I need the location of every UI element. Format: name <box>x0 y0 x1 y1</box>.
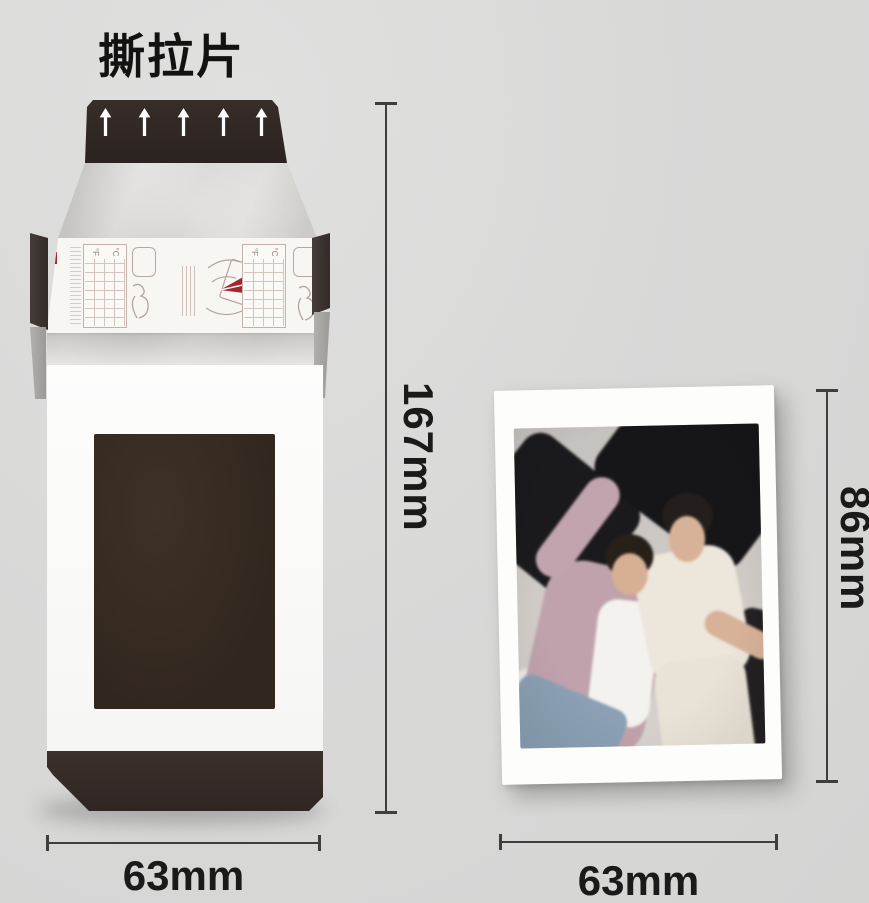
dimension-cap <box>775 834 778 850</box>
pull-direction-band <box>30 100 330 163</box>
up-arrow-icon <box>254 108 269 136</box>
person-figure-icon <box>123 282 155 322</box>
red-mark <box>54 252 57 264</box>
film-pack-body <box>47 365 323 751</box>
pack-bottom-band <box>47 751 323 811</box>
instruction-text-block <box>182 266 195 316</box>
development-time-table: °F °C <box>83 244 127 328</box>
film-exposure-window <box>94 434 275 709</box>
instruction-strip: °F °C <box>30 238 330 333</box>
table-grid <box>85 259 125 326</box>
page-title: 撕拉片 <box>98 18 245 87</box>
dimension-line-pack-height <box>385 103 387 813</box>
dimension-line-pack-width <box>47 842 320 844</box>
paper-fold-highlight <box>30 334 330 369</box>
development-time-table: °F °C <box>242 244 286 328</box>
dimension-label-photo-height: 86mm <box>831 486 869 611</box>
dimension-label-photo-width: 63mm <box>500 857 777 903</box>
pack-paper-envelope: °F °C <box>30 96 330 369</box>
up-arrow-icon <box>137 108 152 136</box>
photo-image <box>514 423 766 748</box>
table-header: °F °C <box>244 246 284 258</box>
up-arrow-icon <box>176 108 191 136</box>
film-canister-icon <box>132 247 156 277</box>
photo-vignette <box>514 423 766 748</box>
dimension-label-pack-width: 63mm <box>47 852 320 900</box>
up-arrow-icon <box>98 108 113 136</box>
dimension-cap <box>816 389 838 392</box>
fine-print-column <box>70 246 81 324</box>
side-tab-left-lower <box>30 327 46 399</box>
side-tab-right <box>312 233 330 315</box>
up-arrow-icon <box>216 108 231 136</box>
side-tab-left <box>30 233 48 330</box>
dimension-cap <box>499 834 502 850</box>
dimension-cap <box>318 835 321 851</box>
table-grid <box>244 259 284 326</box>
dimension-line-photo-height <box>826 390 828 782</box>
dimension-cap <box>816 780 838 783</box>
dimension-label-pack-height: 167mm <box>394 382 442 532</box>
table-header: °F °C <box>85 246 125 258</box>
page-background: 撕拉片 °F °C <box>0 0 869 903</box>
dimension-cap <box>375 102 397 105</box>
dimension-line-photo-width <box>500 841 777 843</box>
dimension-cap <box>375 811 397 814</box>
dimension-cap <box>46 835 49 851</box>
instant-photo <box>494 385 782 785</box>
film-pack: °F °C <box>30 96 330 818</box>
